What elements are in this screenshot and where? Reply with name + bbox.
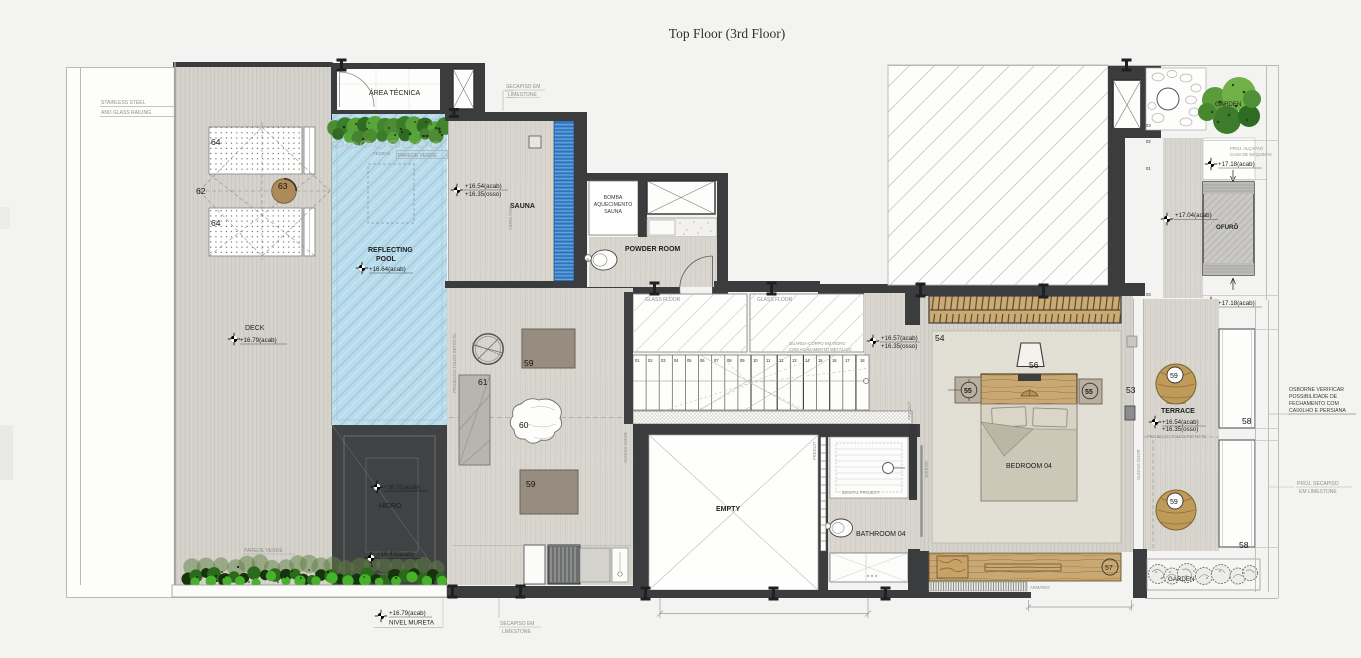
svg-text:SLIDING DOOR: SLIDING DOOR — [623, 433, 628, 463]
svg-text:AND GLASS RAILING: AND GLASS RAILING — [101, 110, 151, 116]
svg-text:+16.35(osso): +16.35(osso) — [465, 191, 501, 198]
svg-text:EMPTY: EMPTY — [716, 506, 740, 513]
svg-text:05: 05 — [687, 358, 692, 363]
svg-text:63: 63 — [278, 181, 288, 191]
svg-text:GUARDA-CORPO EM VIDRO: GUARDA-CORPO EM VIDRO — [789, 341, 846, 346]
svg-text:59: 59 — [526, 479, 536, 489]
svg-text:18: 18 — [860, 358, 865, 363]
svg-text:13: 13 — [792, 358, 797, 363]
svg-text:SAUNA: SAUNA — [510, 203, 535, 210]
svg-text:64: 64 — [211, 218, 221, 228]
svg-text:57: 57 — [1105, 565, 1113, 572]
svg-text:EM LIMESTONE: EM LIMESTONE — [1299, 489, 1337, 495]
svg-text:PROJ. ALÇAPÃO: PROJ. ALÇAPÃO — [1230, 146, 1264, 151]
svg-text:+17.04(acab): +17.04(acab) — [1175, 212, 1212, 219]
svg-text:03: 03 — [1146, 123, 1151, 128]
svg-text:+17.18(acab): +17.18(acab) — [1218, 300, 1255, 307]
svg-text:10: 10 — [753, 358, 758, 363]
svg-text:02: 02 — [1146, 139, 1151, 144]
svg-text:SLIDING DOOR: SLIDING DOOR — [1136, 450, 1141, 480]
svg-text:07: 07 — [714, 358, 719, 363]
svg-text:POWDER ROOM: POWDER ROOM — [625, 246, 680, 253]
svg-text:OSBORNE VERIFICAR: OSBORNE VERIFICAR — [1289, 387, 1344, 393]
svg-text:LIMESTONE: LIMESTONE — [502, 629, 531, 635]
svg-text:CASA DE MÁQUINAS: CASA DE MÁQUINAS — [1230, 152, 1272, 157]
svg-text:14: 14 — [805, 358, 810, 363]
svg-text:06: 06 — [700, 358, 705, 363]
svg-text:OFURÔ: OFURÔ — [1216, 223, 1239, 231]
svg-text:09: 09 — [740, 358, 745, 363]
svg-text:03: 03 — [1146, 292, 1151, 297]
svg-text:55: 55 — [964, 388, 972, 395]
svg-text:58: 58 — [1242, 416, 1252, 426]
svg-text:PAREDE VERDE: PAREDE VERDE — [244, 548, 283, 554]
svg-text:FECHAMENTO COM: FECHAMENTO COM — [1289, 401, 1339, 407]
svg-text:AQUECIMENTO: AQUECIMENTO — [594, 202, 633, 208]
svg-text:+16.35(osso): +16.35(osso) — [881, 343, 917, 350]
svg-text:NIVEL MURETA: NIVEL MURETA — [389, 620, 435, 627]
svg-text:58: 58 — [1239, 540, 1249, 550]
svg-text:POSSIBILIDADE DE: POSSIBILIDADE DE — [1289, 394, 1338, 400]
svg-text:17: 17 — [845, 358, 850, 363]
svg-text:16: 16 — [832, 358, 837, 363]
svg-text:59: 59 — [524, 358, 534, 368]
svg-text:GARDEN: GARDEN — [1215, 101, 1241, 108]
svg-text:03: 03 — [661, 358, 666, 363]
svg-text:61: 61 — [478, 377, 488, 387]
svg-text:HIDRO: HIDRO — [379, 503, 402, 510]
svg-text:ÁREA TÉCNICA: ÁREA TÉCNICA — [369, 88, 421, 97]
svg-text:COM ACABAMENTO METÁLICO: COM ACABAMENTO METÁLICO — [789, 347, 852, 352]
svg-text:SECAPISO EM: SECAPISO EM — [506, 84, 540, 90]
svg-text:+16.79(acab): +16.79(acab) — [389, 610, 426, 617]
svg-text:60: 60 — [519, 420, 529, 430]
svg-text:+16.54(acab): +16.54(acab) — [1162, 419, 1199, 426]
svg-text:ZENITAL PROJECT: ZENITAL PROJECT — [842, 490, 880, 495]
svg-text:GLASS FLOOR: GLASS FLOOR — [645, 297, 681, 303]
svg-text:+16.79(acab): +16.79(acab) — [240, 337, 277, 344]
svg-text:PREDUIT: PREDUIT — [812, 441, 817, 460]
svg-text:01: 01 — [1146, 166, 1151, 171]
svg-text:BOMBA: BOMBA — [604, 195, 623, 201]
svg-text:+16.35(osso): +16.35(osso) — [1162, 426, 1198, 433]
svg-text:04: 04 — [674, 358, 679, 363]
svg-text:+16.57(acab): +16.57(acab) — [881, 335, 918, 342]
svg-text:62: 62 — [196, 186, 206, 196]
svg-text:55: 55 — [1085, 389, 1093, 396]
svg-text:BATHROOM 04: BATHROOM 04 — [856, 531, 906, 538]
svg-text:64: 64 — [211, 137, 221, 147]
svg-text:59: 59 — [1170, 373, 1178, 380]
svg-text:MIRROR: MIRROR — [924, 461, 929, 478]
svg-text:+16.43(acab): +16.43(acab) — [377, 551, 414, 558]
svg-text:+16.01(acab): +16.01(acab) — [384, 484, 421, 491]
svg-text:GARDEN: GARDEN — [1168, 576, 1194, 583]
svg-text:STAINLESS STEEL: STAINLESS STEEL — [101, 100, 146, 106]
svg-text:BEDROOM 04: BEDROOM 04 — [1006, 463, 1052, 470]
svg-text:REFLECTING: REFLECTING — [368, 247, 413, 254]
svg-text:POOL: POOL — [376, 256, 397, 263]
svg-text:GLASS FLOOR: GLASS FLOOR — [757, 297, 793, 303]
svg-text:SAUNA: SAUNA — [604, 209, 622, 215]
svg-text:+17.18(acab): +17.18(acab) — [1218, 161, 1255, 168]
svg-text:TERRACE: TERRACE — [1161, 408, 1195, 415]
svg-text:PROJEÇÃO TOLDO RETRÁTIL: PROJEÇÃO TOLDO RETRÁTIL — [452, 332, 457, 393]
svg-text:+16.54(acab): +16.54(acab) — [465, 183, 502, 190]
svg-text:56: 56 — [1029, 360, 1039, 370]
svg-text:+16.64(acab): +16.64(acab) — [369, 266, 406, 273]
svg-text:53: 53 — [1126, 385, 1136, 395]
svg-text:08: 08 — [727, 358, 732, 363]
svg-text:ARMÁRIO: ARMÁRIO — [1030, 585, 1050, 590]
svg-text:PEDRAS: PEDRAS — [373, 151, 390, 156]
svg-text:PROJ. SECAPISO: PROJ. SECAPISO — [1297, 481, 1339, 487]
svg-text:LIMESTONE: LIMESTONE — [508, 92, 537, 98]
svg-text:PAREDE VERDE: PAREDE VERDE — [398, 153, 437, 159]
svg-text:CAIXILHO E PERSIANA: CAIXILHO E PERSIANA — [1289, 408, 1346, 414]
svg-text:02: 02 — [648, 358, 653, 363]
svg-text:11: 11 — [766, 358, 771, 363]
svg-text:15: 15 — [818, 358, 823, 363]
svg-text:VIDRO FIXO: VIDRO FIXO — [508, 205, 513, 230]
svg-text:DECK: DECK — [245, 325, 265, 332]
svg-text:Top Floor (3rd Floor): Top Floor (3rd Floor) — [669, 26, 785, 41]
svg-text:SECAPISO EM: SECAPISO EM — [500, 621, 534, 627]
svg-text:01: 01 — [635, 358, 640, 363]
svg-text:59: 59 — [1170, 499, 1178, 506]
svg-text:PROJEÇÃO TOLDO RETRÁTIL: PROJEÇÃO TOLDO RETRÁTIL — [1147, 434, 1208, 439]
svg-text:PRE DUT: PRE DUT — [907, 401, 912, 420]
svg-text:54: 54 — [935, 333, 945, 343]
